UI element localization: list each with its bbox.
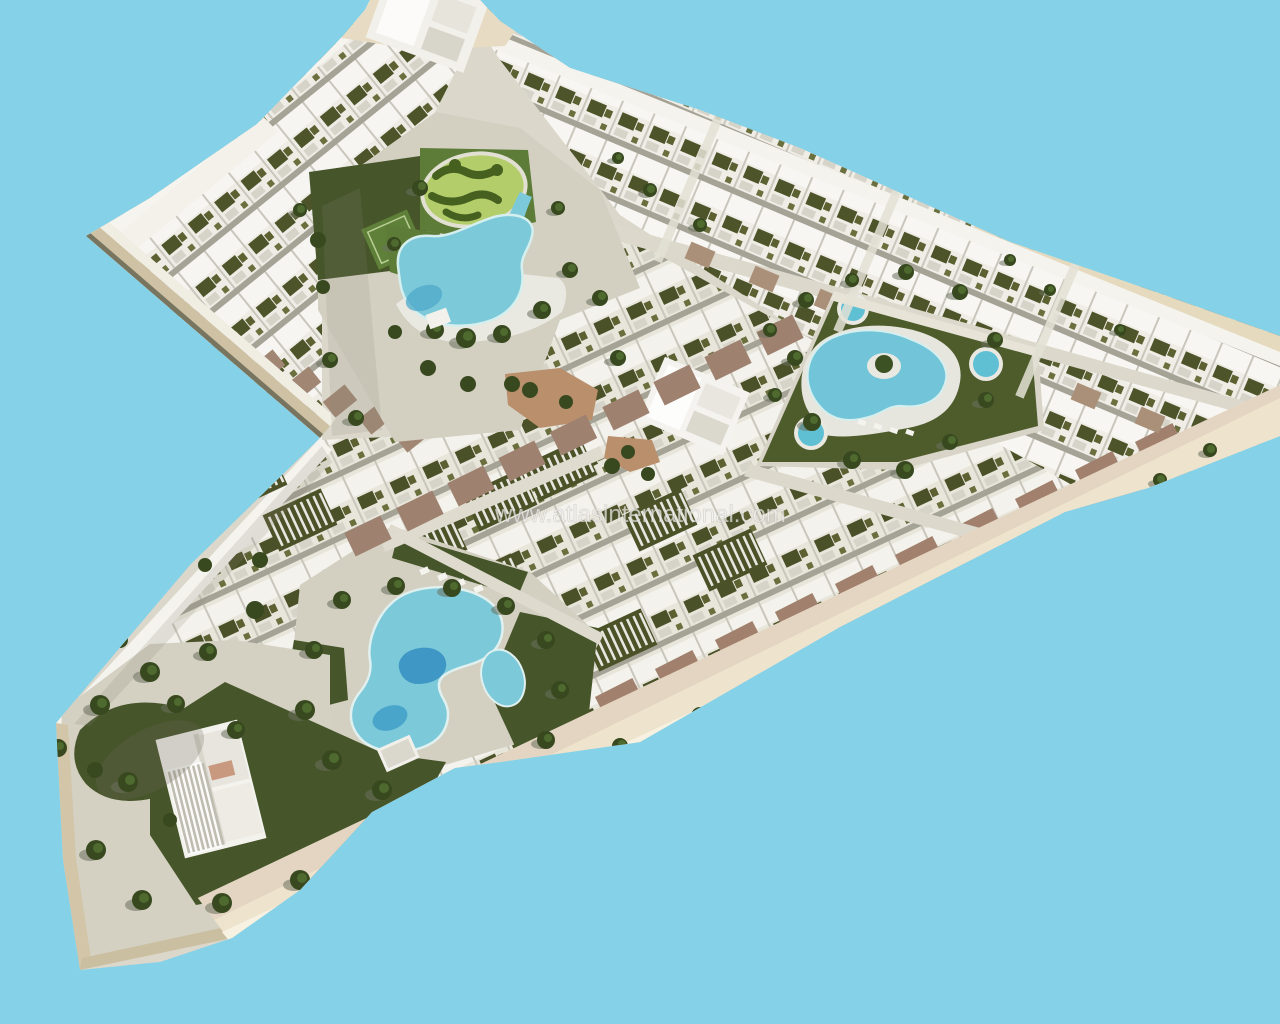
svg-text:www.atlasinternational.com: www.atlasinternational.com [494,501,786,528]
